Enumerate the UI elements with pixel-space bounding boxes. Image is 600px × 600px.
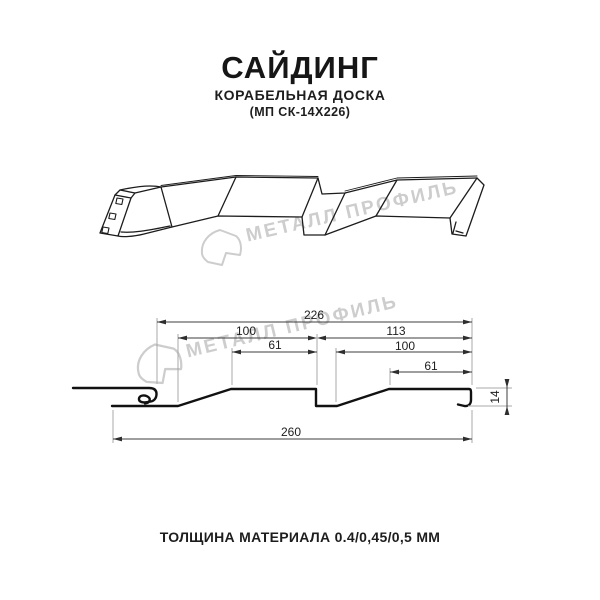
page-title: САЙДИНГ <box>0 50 600 86</box>
dim-label-overall-width: 226 <box>304 308 324 322</box>
siding-spec-card: САЙДИНГ КОРАБЕЛЬНАЯ ДОСКА (МП СК-14Х226)… <box>0 0 600 600</box>
cross-section-drawing <box>73 388 471 406</box>
dimension-lines <box>113 322 507 439</box>
dim-label-right-overall: 113 <box>386 324 405 338</box>
dim-label-profile-height: 14 <box>488 390 502 403</box>
dim-label-right-upper: 61 <box>424 359 437 373</box>
profile-name: КОРАБЕЛЬНАЯ ДОСКА <box>0 87 600 103</box>
extension-lines <box>113 318 512 443</box>
watermark-text-lower: МЕТАЛЛ ПРОФИЛЬ <box>184 291 401 363</box>
metall-profil-logo-icon <box>135 341 184 386</box>
dim-label-right-lower: 100 <box>395 339 415 353</box>
dim-label-left-lower: 100 <box>236 324 256 338</box>
metall-profil-logo-icon <box>202 230 241 265</box>
dim-label-left-upper: 61 <box>268 338 281 352</box>
dimension-arrows <box>113 320 509 442</box>
thickness-note: ТОЛЩИНА МАТЕРИАЛА 0.4/0,45/0,5 ММ <box>0 529 600 545</box>
watermark-text-upper: МЕТАЛЛ ПРОФИЛЬ <box>244 177 461 247</box>
dim-label-total-width: 260 <box>281 425 301 439</box>
model-code: (МП СК-14Х226) <box>0 105 600 119</box>
